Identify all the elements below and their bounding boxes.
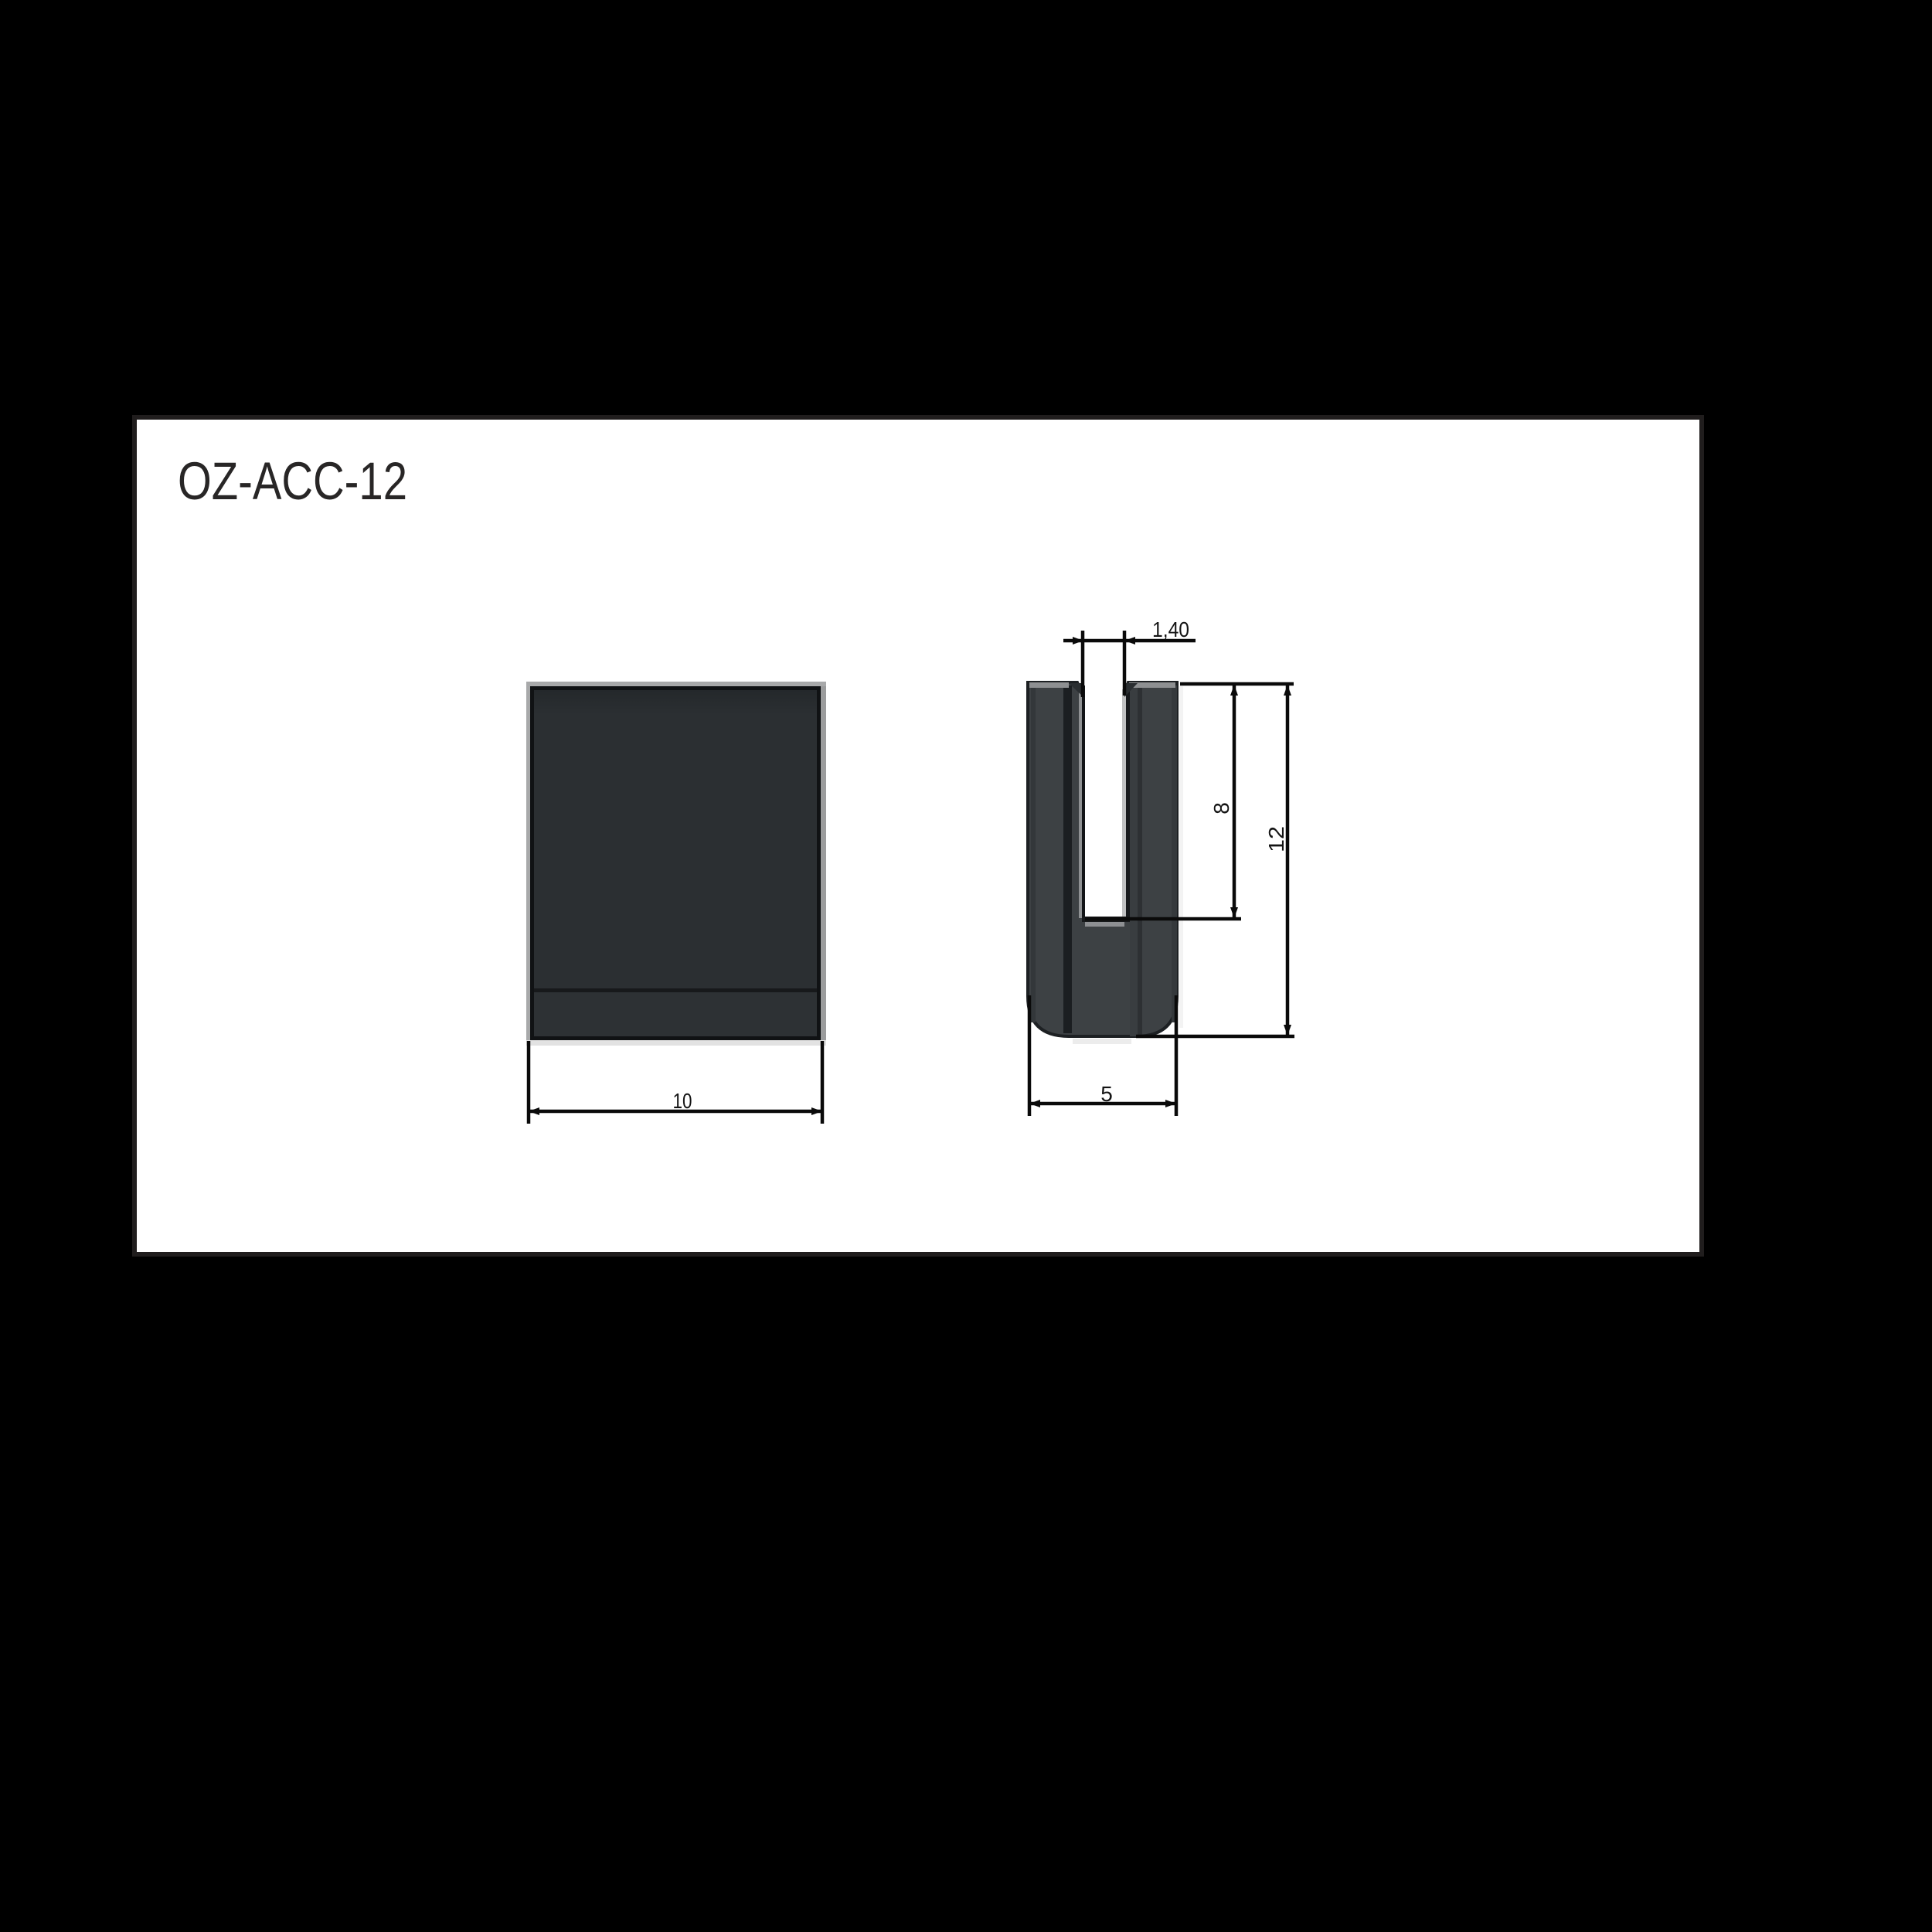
svg-text:5: 5 bbox=[1100, 1082, 1113, 1106]
svg-text:OZ-ACC-12: OZ-ACC-12 bbox=[178, 451, 407, 511]
svg-text:8: 8 bbox=[1209, 802, 1233, 815]
svg-text:1,40: 1,40 bbox=[1152, 617, 1189, 641]
svg-text:10: 10 bbox=[673, 1089, 692, 1113]
svg-text:12: 12 bbox=[1264, 826, 1288, 852]
